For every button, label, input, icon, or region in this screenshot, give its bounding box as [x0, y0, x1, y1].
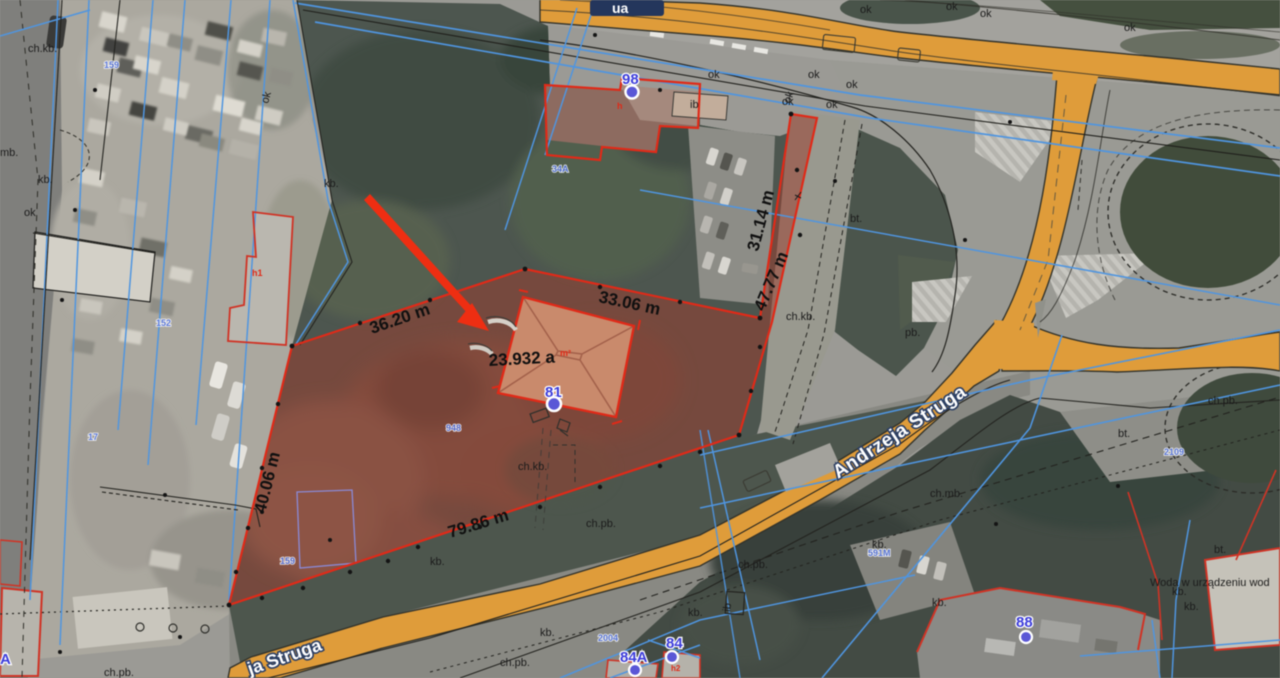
svg-text:ch.pb.: ch.pb.	[586, 518, 616, 530]
svg-text:ua: ua	[612, 0, 629, 16]
svg-text:bt.: bt.	[850, 213, 862, 225]
svg-text:2004: 2004	[598, 633, 618, 643]
svg-text:mb.: mb.	[0, 147, 18, 159]
svg-text:kb.: kb.	[688, 607, 703, 619]
svg-text:17: 17	[88, 432, 98, 442]
svg-text:ch.pb.: ch.pb.	[1208, 395, 1238, 407]
svg-text:pb.: pb.	[905, 327, 920, 339]
svg-text:ok: ok	[846, 79, 858, 91]
svg-text:ok: ok	[24, 207, 36, 219]
svg-text:m²: m²	[560, 348, 571, 358]
svg-text:kb.: kb.	[540, 627, 555, 639]
svg-text:ib: ib	[690, 99, 699, 111]
svg-text:kb.: kb.	[38, 174, 53, 186]
svg-text:152: 152	[156, 318, 171, 328]
svg-text:ch.pb.: ch.pb.	[738, 559, 768, 571]
svg-text:kb.: kb.	[1184, 601, 1199, 613]
svg-text:ok: ok	[808, 69, 820, 81]
svg-text:ok: ok	[860, 4, 872, 16]
svg-text:ch.pb.: ch.pb.	[104, 667, 134, 678]
svg-text:kb.: kb.	[872, 539, 887, 551]
svg-text:A: A	[0, 651, 11, 668]
svg-text:ib: ib	[721, 602, 734, 612]
svg-text:ok: ok	[826, 99, 838, 111]
svg-text:159: 159	[104, 60, 119, 70]
svg-text:Woda w urządzeniu wod: Woda w urządzeniu wod	[1150, 577, 1270, 589]
svg-text:88: 88	[1016, 614, 1033, 631]
svg-text:ch.kb.: ch.kb.	[786, 311, 815, 323]
svg-text:84: 84	[666, 635, 683, 652]
svg-text:bt.: bt.	[1214, 544, 1226, 556]
svg-text:h2: h2	[671, 664, 681, 673]
svg-text:h: h	[617, 101, 623, 111]
svg-text:948: 948	[446, 423, 461, 433]
svg-text:ch.kb.: ch.kb.	[518, 461, 547, 473]
svg-text:ok: ok	[708, 69, 720, 81]
svg-text:kb.: kb.	[324, 178, 339, 190]
svg-text:ch.pb.: ch.pb.	[500, 657, 530, 669]
svg-text:34A: 34A	[552, 164, 569, 174]
svg-text:bt.: bt.	[1118, 428, 1130, 440]
svg-text:ch.mb.: ch.mb.	[930, 488, 963, 500]
svg-text:ok: ok	[1124, 22, 1136, 34]
svg-text:23.932 a: 23.932 a	[488, 348, 556, 370]
svg-text:h1: h1	[252, 268, 263, 278]
svg-text:ok: ok	[946, 1, 958, 13]
svg-text:2109: 2109	[1164, 447, 1184, 457]
svg-text:ch.kb.: ch.kb.	[28, 43, 57, 55]
svg-text:kb.: kb.	[430, 556, 445, 568]
svg-text:kb.: kb.	[932, 597, 947, 609]
svg-text:159: 159	[280, 556, 295, 566]
svg-text:ok: ok	[980, 8, 992, 20]
